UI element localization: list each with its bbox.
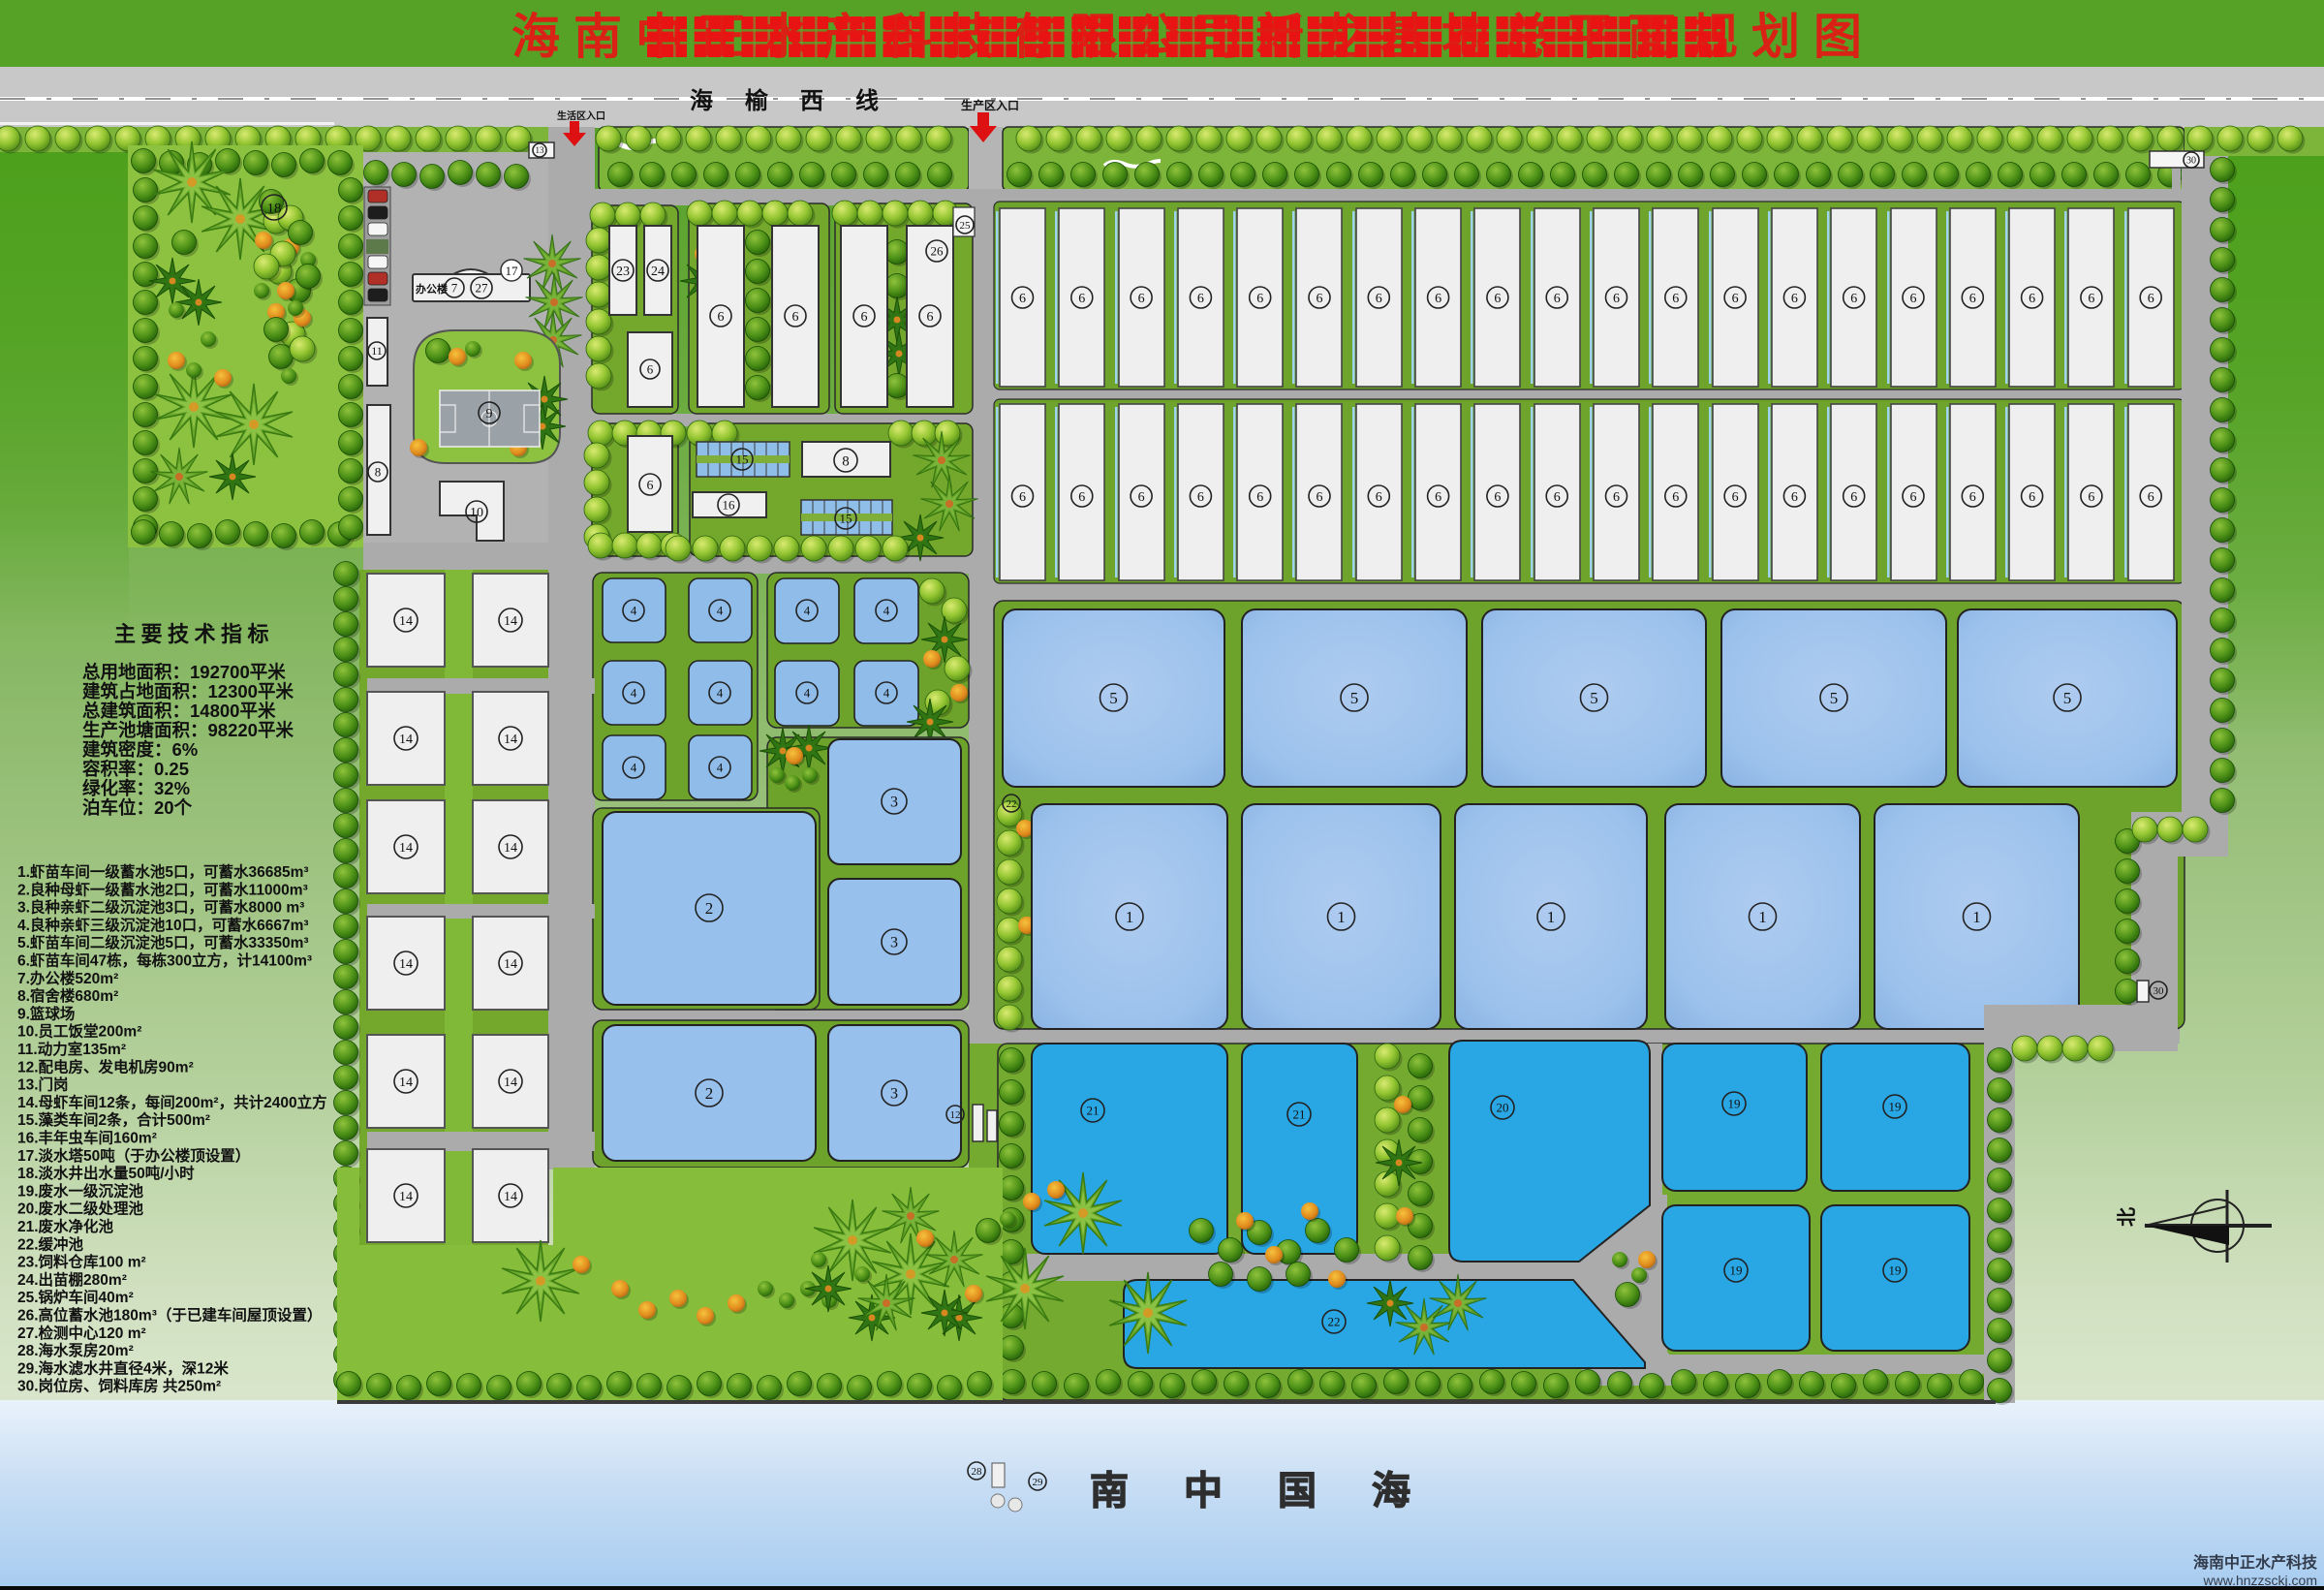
svg-text:14: 14 [399, 1076, 413, 1090]
svg-text:海南中正水产科技: 海南中正水产科技 [2193, 1553, 2318, 1572]
svg-text:23: 23 [616, 265, 630, 279]
svg-text:6: 6 [1732, 292, 1739, 306]
svg-text:8: 8 [375, 465, 382, 480]
svg-text:14: 14 [504, 614, 517, 629]
svg-text:西: 西 [800, 88, 823, 114]
svg-text:6: 6 [1910, 490, 1917, 505]
svg-text:6: 6 [1494, 490, 1501, 505]
svg-text:28: 28 [972, 1466, 983, 1478]
svg-text:16: 16 [723, 498, 736, 513]
svg-text:6: 6 [1613, 292, 1620, 306]
svg-text:海: 海 [1372, 1470, 1410, 1512]
svg-text:8.宿舍楼680m²: 8.宿舍楼680m² [17, 986, 118, 1005]
svg-text:27: 27 [476, 281, 489, 296]
svg-text:29.海水滤水井直径4米，深12米: 29.海水滤水井直径4米，深12米 [17, 1358, 229, 1377]
svg-text:10: 10 [470, 506, 483, 520]
svg-text:4: 4 [631, 761, 637, 775]
svg-text:生产区入口: 生产区入口 [961, 98, 1019, 112]
svg-text:18: 18 [267, 201, 282, 216]
svg-text:6: 6 [1554, 490, 1561, 505]
svg-text:www.hnzzsckj.com: www.hnzzsckj.com [2203, 1573, 2317, 1588]
svg-text:7.办公楼520m²: 7.办公楼520m² [17, 969, 118, 987]
svg-text:21: 21 [1087, 1104, 1100, 1118]
svg-text:4: 4 [717, 761, 724, 775]
svg-text:30: 30 [2186, 156, 2196, 167]
svg-text:22.缓冲池: 22.缓冲池 [17, 1234, 84, 1253]
svg-text:海: 海 [690, 87, 713, 114]
svg-text:北: 北 [2116, 1207, 2138, 1227]
svg-text:12: 12 [950, 1109, 961, 1121]
svg-text:绿化率：32%: 绿化率：32% [82, 778, 190, 798]
svg-text:6: 6 [1435, 490, 1441, 505]
svg-text:建筑密度：6%: 建筑密度：6% [82, 739, 198, 760]
svg-text:9: 9 [486, 407, 493, 421]
svg-text:5: 5 [1109, 689, 1118, 707]
svg-text:14: 14 [399, 1190, 413, 1204]
svg-text:4: 4 [804, 604, 811, 618]
svg-text:4: 4 [717, 686, 724, 701]
svg-text:30: 30 [2154, 985, 2165, 997]
svg-text:16.丰年虫车间160m²: 16.丰年虫车间160m² [17, 1129, 157, 1147]
svg-text:6: 6 [2029, 490, 2035, 505]
svg-text:20.废水二级处理池: 20.废水二级处理池 [17, 1200, 144, 1218]
svg-text:1.虾苗车间一级蓄水池5口，可蓄水36685m³: 1.虾苗车间一级蓄水池5口，可蓄水36685m³ [17, 862, 309, 881]
svg-text:17: 17 [506, 264, 519, 278]
svg-text:6: 6 [1138, 490, 1145, 505]
svg-text:5.虾苗车间二级沉淀池5口，可蓄水33350m³: 5.虾苗车间二级沉淀池5口，可蓄水33350m³ [17, 933, 309, 951]
svg-text:6: 6 [1850, 490, 1857, 505]
svg-text:1: 1 [1547, 908, 1556, 926]
svg-text:4.良种亲虾三级沉淀池10口，可蓄水6667m³: 4.良种亲虾三级沉淀池10口，可蓄水6667m³ [17, 916, 309, 934]
svg-text:6: 6 [1791, 292, 1798, 306]
svg-text:6: 6 [2148, 490, 2154, 505]
svg-text:1: 1 [1972, 908, 1981, 926]
svg-text:14: 14 [504, 841, 517, 856]
svg-text:6: 6 [861, 310, 868, 325]
svg-text:23.饲料仓库100 m²: 23.饲料仓库100 m² [17, 1253, 146, 1271]
svg-text:中: 中 [1184, 1470, 1223, 1512]
svg-text:11.动力室135m²: 11.动力室135m² [17, 1040, 126, 1058]
svg-text:6: 6 [1317, 490, 1323, 505]
svg-text:6: 6 [1019, 292, 1026, 306]
svg-text:6: 6 [1850, 292, 1857, 306]
svg-text:3: 3 [890, 935, 898, 951]
svg-text:17.淡水塔50吨（于办公楼顶设置）: 17.淡水塔50吨（于办公楼顶设置） [17, 1146, 250, 1165]
svg-text:24: 24 [651, 265, 665, 279]
svg-text:6: 6 [1317, 292, 1323, 306]
svg-text:6: 6 [647, 479, 654, 493]
svg-text:6: 6 [647, 362, 654, 377]
svg-text:2: 2 [705, 899, 714, 918]
svg-text:7: 7 [451, 281, 458, 296]
svg-text:26.高位蓄水池180m³（于已建车间屋顶设置）: 26.高位蓄水池180m³（于已建车间屋顶设置） [17, 1306, 322, 1325]
svg-text:22: 22 [1328, 1315, 1341, 1329]
svg-text:线: 线 [855, 88, 879, 114]
svg-text:6: 6 [1376, 490, 1382, 505]
svg-text:14: 14 [399, 841, 413, 856]
svg-text:6: 6 [1376, 292, 1382, 306]
svg-text:26: 26 [931, 244, 945, 259]
svg-text:6: 6 [1672, 490, 1679, 505]
svg-text:6: 6 [2088, 292, 2094, 306]
svg-text:24.出苗棚280m²: 24.出苗棚280m² [17, 1270, 127, 1289]
svg-text:19: 19 [1730, 1263, 1743, 1278]
svg-text:1: 1 [1758, 908, 1767, 926]
svg-text:14: 14 [504, 733, 517, 747]
svg-text:15.藻类车间2条，合计500m²: 15.藻类车间2条，合计500m² [17, 1110, 210, 1129]
svg-text:生产池塘面积：98220平米: 生产池塘面积：98220平米 [82, 720, 294, 740]
svg-text:南: 南 [1090, 1470, 1129, 1512]
svg-text:容积率：0.25: 容积率：0.25 [81, 759, 189, 779]
svg-text:1: 1 [1337, 908, 1346, 926]
svg-text:19: 19 [1889, 1263, 1902, 1278]
svg-text:19: 19 [1728, 1097, 1741, 1111]
svg-text:22: 22 [1007, 798, 1017, 810]
svg-text:14: 14 [504, 1076, 517, 1090]
svg-text:6: 6 [2029, 292, 2035, 306]
svg-text:18.淡水井出水量50吨/小时: 18.淡水井出水量50吨/小时 [17, 1164, 195, 1182]
svg-text:21.废水净化池: 21.废水净化池 [17, 1217, 114, 1235]
svg-text:6: 6 [1732, 490, 1739, 505]
svg-text:3.良种亲虾二级沉淀池3口，可蓄水8000 m³: 3.良种亲虾二级沉淀池3口，可蓄水8000 m³ [17, 898, 304, 917]
svg-text:12.配电房、发电机房90m²: 12.配电房、发电机房90m² [17, 1057, 194, 1076]
svg-text:8: 8 [842, 453, 850, 469]
svg-text:6: 6 [2148, 292, 2154, 306]
svg-text:6: 6 [1554, 292, 1561, 306]
svg-text:6: 6 [1910, 292, 1917, 306]
svg-text:29: 29 [1033, 1477, 1044, 1488]
svg-text:3: 3 [890, 795, 898, 811]
svg-text:6: 6 [1078, 490, 1085, 505]
svg-text:14.母虾车间12条，每间200m²，共计2400立方: 14.母虾车间12条，每间200m²，共计2400立方 [17, 1093, 327, 1111]
svg-text:2: 2 [705, 1084, 714, 1103]
svg-text:28.海水泵房20m²: 28.海水泵房20m² [17, 1341, 134, 1359]
svg-text:6: 6 [1078, 292, 1085, 306]
svg-text:4: 4 [883, 604, 890, 618]
svg-text:13: 13 [536, 145, 545, 155]
svg-text:6: 6 [1138, 292, 1145, 306]
svg-text:总用地面积：192700平米: 总用地面积：192700平米 [82, 662, 286, 682]
svg-text:5: 5 [2063, 689, 2072, 707]
svg-text:6: 6 [1613, 490, 1620, 505]
svg-text:6: 6 [1791, 490, 1798, 505]
svg-text:25: 25 [960, 220, 972, 232]
svg-text:13.门岗: 13.门岗 [17, 1076, 69, 1094]
svg-text:4: 4 [631, 686, 637, 701]
svg-text:主要技术指标: 主要技术指标 [114, 622, 274, 646]
svg-text:1: 1 [1126, 908, 1134, 926]
svg-text:6.虾苗车间47栋，每栋300立方，计14100m³: 6.虾苗车间47栋，每栋300立方，计14100m³ [17, 951, 312, 970]
svg-text:6: 6 [1672, 292, 1679, 306]
svg-text:总建筑面积：14800平米: 总建筑面积：14800平米 [82, 701, 276, 721]
svg-text:6: 6 [1197, 490, 1204, 505]
svg-text:6: 6 [1256, 490, 1263, 505]
svg-text:6: 6 [1494, 292, 1501, 306]
svg-text:榆: 榆 [745, 87, 769, 114]
svg-text:25.锅炉车间40m²: 25.锅炉车间40m² [17, 1288, 134, 1306]
svg-text:6: 6 [1969, 490, 1976, 505]
svg-text:14: 14 [399, 733, 413, 747]
svg-text:11: 11 [371, 344, 383, 358]
svg-text:国: 国 [1278, 1470, 1317, 1512]
svg-text:5: 5 [1830, 689, 1839, 707]
svg-text:20: 20 [1497, 1101, 1509, 1115]
svg-text:14: 14 [399, 957, 413, 972]
svg-text:6: 6 [1019, 490, 1026, 505]
svg-text:生活区入口: 生活区入口 [557, 109, 605, 122]
svg-text:21: 21 [1293, 1107, 1306, 1122]
svg-text:2.良种母虾一级蓄水池2口，可蓄水11000m³: 2.良种母虾一级蓄水池2口，可蓄水11000m³ [17, 880, 308, 898]
svg-text:6: 6 [2088, 490, 2094, 505]
svg-text:5: 5 [1350, 689, 1359, 707]
svg-text:4: 4 [883, 686, 890, 701]
svg-text:30.岗位房、饲料库房 共250m²: 30.岗位房、饲料库房 共250m² [17, 1377, 221, 1395]
svg-text:6: 6 [1256, 292, 1263, 306]
svg-text:6: 6 [1969, 292, 1976, 306]
svg-text:14: 14 [504, 957, 517, 972]
svg-text:15: 15 [840, 512, 852, 526]
svg-text:14: 14 [504, 1190, 517, 1204]
svg-text:6: 6 [1197, 292, 1204, 306]
svg-text:4: 4 [717, 604, 724, 618]
svg-text:19.废水一级沉淀池: 19.废水一级沉淀池 [17, 1181, 144, 1200]
svg-text:3: 3 [890, 1086, 898, 1103]
svg-text:6: 6 [1435, 292, 1441, 306]
svg-text:14: 14 [399, 614, 413, 629]
svg-text:6: 6 [792, 310, 799, 325]
svg-text:6: 6 [718, 310, 725, 325]
svg-text:15: 15 [736, 452, 749, 467]
svg-text:19: 19 [1889, 1100, 1902, 1114]
svg-text:建筑占地面积：12300平米: 建筑占地面积：12300平米 [82, 681, 294, 701]
svg-text:办公楼: 办公楼 [416, 282, 448, 296]
svg-text:10.员工饭堂200m²: 10.员工饭堂200m² [17, 1022, 141, 1041]
svg-text:27.检测中心120 m²: 27.检测中心120 m² [17, 1324, 146, 1342]
svg-text:4: 4 [631, 604, 637, 618]
svg-text:海南中正水产科技有限公司新龙基地总平面规划图: 海南中正水产科技有限公司新龙基地总平面规划图 [511, 10, 1875, 64]
svg-text:5: 5 [1590, 689, 1598, 707]
svg-text:6: 6 [927, 310, 934, 325]
svg-text:9.篮球场: 9.篮球场 [17, 1004, 75, 1022]
svg-text:4: 4 [804, 686, 811, 701]
svg-text:泊车位：20个: 泊车位：20个 [82, 797, 193, 818]
